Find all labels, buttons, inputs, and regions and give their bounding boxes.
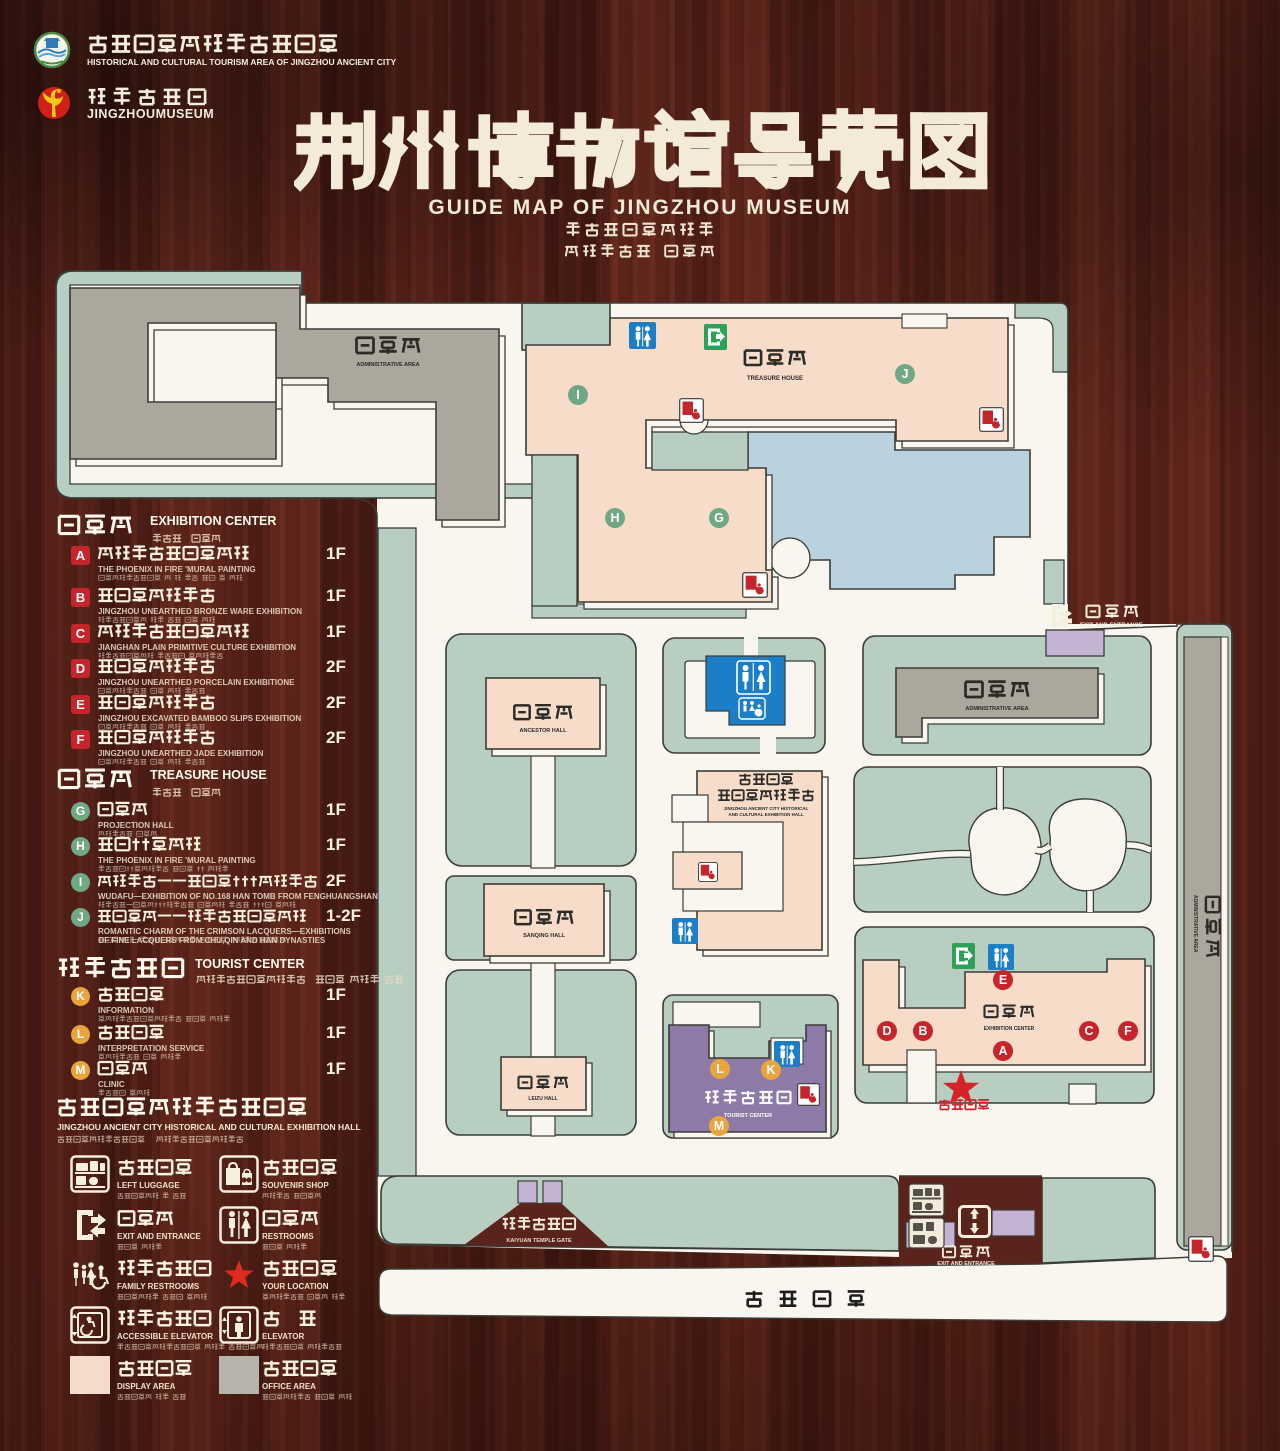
svg-text:I: I bbox=[576, 388, 579, 402]
svg-text:LEIZU HALL: LEIZU HALL bbox=[528, 1096, 557, 1102]
svg-text:ADMINISTRATIVE AREA: ADMINISTRATIVE AREA bbox=[1192, 895, 1198, 953]
svg-text:K: K bbox=[766, 1063, 775, 1077]
svg-text:ADMINISTRATIVE AREA: ADMINISTRATIVE AREA bbox=[965, 706, 1028, 712]
svg-text:F: F bbox=[1124, 1024, 1132, 1038]
svg-text:A: A bbox=[998, 1044, 1007, 1058]
svg-text:TREASURE HOUSE: TREASURE HOUSE bbox=[747, 376, 803, 382]
svg-text:EXIT AND ENTRANCE: EXIT AND ENTRANCE bbox=[937, 1261, 995, 1267]
svg-text:H: H bbox=[610, 511, 619, 525]
svg-text:D: D bbox=[882, 1024, 891, 1038]
svg-text:C: C bbox=[1084, 1024, 1093, 1038]
svg-text:L: L bbox=[716, 1062, 724, 1076]
svg-text:AND CULTURAL EXHIBITION HALL: AND CULTURAL EXHIBITION HALL bbox=[728, 812, 804, 817]
svg-text:ADMINISTRATIVE AREA: ADMINISTRATIVE AREA bbox=[356, 362, 419, 368]
svg-text:ANCESTOR HALL: ANCESTOR HALL bbox=[520, 728, 568, 734]
svg-text:M: M bbox=[714, 1119, 724, 1133]
svg-text:EXHIBITION CENTER: EXHIBITION CENTER bbox=[984, 1026, 1035, 1032]
svg-text:G: G bbox=[714, 511, 724, 525]
svg-text:JINGZHOU ANCIENT CITY HISTORIC: JINGZHOU ANCIENT CITY HISTORICAL bbox=[724, 806, 809, 811]
svg-text:TOURIST CENTER: TOURIST CENTER bbox=[724, 1113, 772, 1119]
svg-text:B: B bbox=[918, 1024, 927, 1038]
svg-text:EXIT AND ENTRANCE: EXIT AND ENTRANCE bbox=[1080, 623, 1143, 629]
svg-text:E: E bbox=[999, 973, 1007, 987]
svg-text:SANQING HALL: SANQING HALL bbox=[523, 933, 566, 939]
svg-text:KAIYUAN TEMPLE GATE: KAIYUAN TEMPLE GATE bbox=[506, 1238, 572, 1244]
svg-text:J: J bbox=[902, 367, 909, 381]
